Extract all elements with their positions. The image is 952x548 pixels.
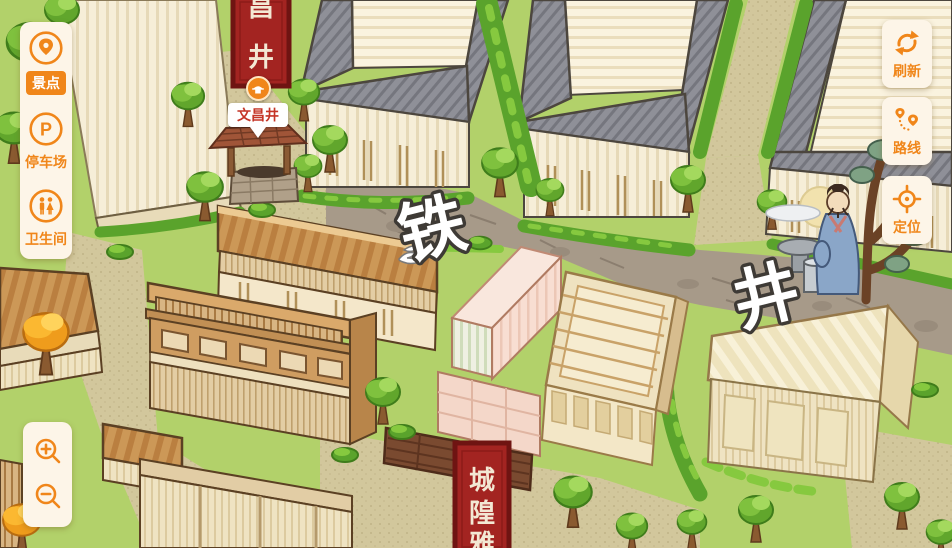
parking-icon: P: [28, 111, 64, 147]
refresh-button[interactable]: 刷新: [882, 20, 932, 88]
zoom-in-button[interactable]: [32, 436, 64, 468]
zoom-in-icon: [32, 436, 64, 468]
zoom-panel: [23, 422, 72, 527]
poi-pin-icon[interactable]: [246, 76, 271, 101]
banner-bottom-char-3: 雅: [469, 530, 495, 548]
scenic-spots-icon: [28, 30, 64, 66]
svg-text:P: P: [40, 120, 52, 140]
scenic-map-app: 昌 井 城 隍 雅 铁 井 文昌井 景点 P 停车场: [0, 0, 952, 548]
zoom-out-button[interactable]: [32, 481, 64, 513]
map-canvas[interactable]: 昌 井 城 隍 雅 铁 井: [0, 0, 952, 548]
sidebar-item-parking[interactable]: P 停车场: [25, 111, 67, 172]
locate-icon: [892, 184, 922, 214]
sidebar-item-scenic-spots[interactable]: 景点: [26, 30, 66, 95]
route-button[interactable]: 路线: [882, 97, 932, 165]
banner-top-char-2: 井: [248, 43, 274, 73]
route-icon: [892, 105, 922, 135]
refresh-icon: [892, 28, 922, 58]
restroom-icon: [28, 188, 64, 224]
sidebar-item-label[interactable]: 景点: [26, 71, 66, 95]
pavilion-icon: [250, 81, 266, 97]
locate-button[interactable]: 定位: [882, 176, 932, 244]
banner-bottom-char-2: 隍: [469, 499, 495, 529]
locate-label[interactable]: 定位: [893, 217, 921, 237]
sidebar-item-label[interactable]: 停车场: [25, 152, 67, 172]
poi-label[interactable]: 文昌井: [228, 103, 288, 127]
banner-top: 昌 井: [233, 0, 289, 86]
poi-pointer: [250, 127, 266, 146]
sidebar-item-restroom[interactable]: 卫生间: [25, 188, 67, 249]
route-label[interactable]: 路线: [893, 138, 921, 158]
cloud: [766, 205, 820, 221]
sidebar-panel: 景点 P 停车场 卫生间: [20, 22, 72, 259]
zoom-out-icon: [32, 481, 64, 513]
sidebar-item-label[interactable]: 卫生间: [25, 229, 67, 249]
banner-top-char-1: 昌: [248, 0, 274, 23]
refresh-label[interactable]: 刷新: [893, 61, 921, 81]
poi-marker-wenchang-well[interactable]: 文昌井: [228, 76, 288, 146]
banner-bottom: 城 隍 雅: [455, 443, 509, 548]
banner-bottom-char-1: 城: [469, 466, 495, 496]
